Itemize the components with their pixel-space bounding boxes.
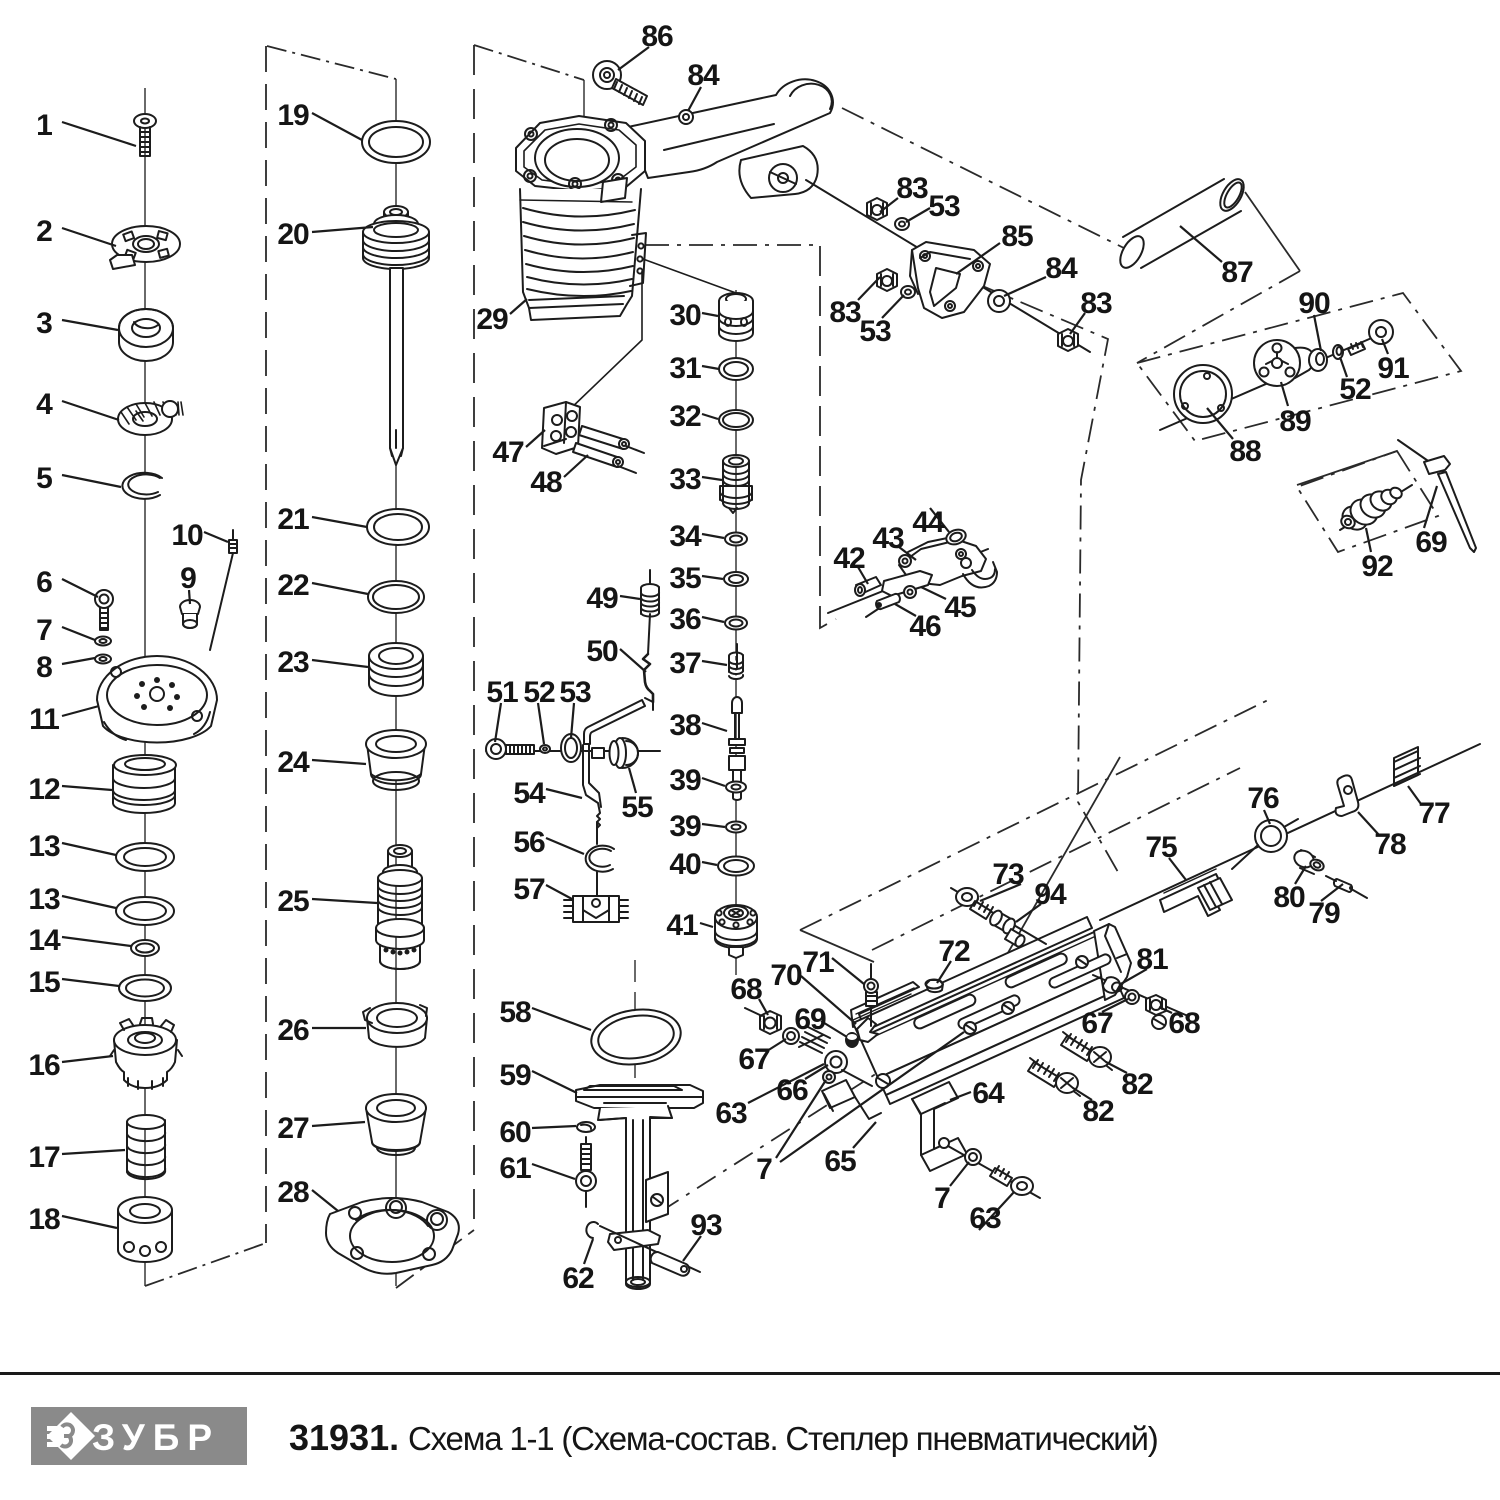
svg-text:47: 47 xyxy=(492,436,524,469)
svg-text:19: 19 xyxy=(277,99,309,132)
svg-text:78: 78 xyxy=(1374,828,1406,861)
svg-text:44: 44 xyxy=(912,506,945,539)
svg-text:90: 90 xyxy=(1298,287,1330,320)
svg-text:88: 88 xyxy=(1229,435,1261,468)
svg-text:21: 21 xyxy=(277,503,309,536)
svg-text:55: 55 xyxy=(621,791,653,824)
svg-text:53: 53 xyxy=(559,676,591,709)
svg-text:35: 35 xyxy=(669,562,701,595)
svg-text:ЗУБР: ЗУБР xyxy=(92,1417,220,1458)
svg-text:20: 20 xyxy=(277,218,309,251)
svg-text:73: 73 xyxy=(992,858,1024,891)
svg-text:82: 82 xyxy=(1121,1068,1153,1101)
svg-text:72: 72 xyxy=(938,935,970,968)
svg-text:92: 92 xyxy=(1361,550,1393,583)
svg-text:58: 58 xyxy=(499,996,531,1029)
svg-text:89: 89 xyxy=(1279,405,1311,438)
svg-text:53: 53 xyxy=(928,190,960,223)
svg-text:57: 57 xyxy=(513,873,545,906)
svg-text:5: 5 xyxy=(36,462,52,495)
svg-text:70: 70 xyxy=(770,959,802,992)
svg-text:36: 36 xyxy=(669,603,701,636)
svg-text:69: 69 xyxy=(794,1003,826,1036)
svg-text:40: 40 xyxy=(669,848,701,881)
svg-text:26: 26 xyxy=(277,1014,309,1047)
svg-text:52: 52 xyxy=(1339,373,1371,406)
svg-text:9: 9 xyxy=(180,562,196,595)
svg-text:8: 8 xyxy=(36,651,52,684)
svg-text:33: 33 xyxy=(669,463,701,496)
svg-text:7: 7 xyxy=(934,1182,950,1215)
svg-text:46: 46 xyxy=(909,610,941,643)
svg-text:84: 84 xyxy=(687,59,720,92)
svg-text:63: 63 xyxy=(969,1202,1001,1235)
svg-text:68: 68 xyxy=(730,973,762,1006)
svg-text:48: 48 xyxy=(530,466,562,499)
svg-text:45: 45 xyxy=(944,591,976,624)
svg-text:85: 85 xyxy=(1001,220,1033,253)
svg-text:54: 54 xyxy=(513,777,546,810)
svg-text:14: 14 xyxy=(28,924,61,957)
svg-text:10: 10 xyxy=(171,519,203,552)
svg-text:17: 17 xyxy=(28,1141,60,1174)
svg-text:28: 28 xyxy=(277,1176,309,1209)
svg-text:56: 56 xyxy=(513,826,545,859)
svg-text:49: 49 xyxy=(586,582,618,615)
svg-text:83: 83 xyxy=(1080,287,1112,320)
svg-text:61: 61 xyxy=(499,1152,531,1185)
svg-text:87: 87 xyxy=(1221,256,1253,289)
svg-text:76: 76 xyxy=(1247,782,1279,815)
svg-text:11: 11 xyxy=(29,703,59,736)
svg-text:38: 38 xyxy=(669,709,701,742)
svg-text:31931.: 31931. xyxy=(289,1417,399,1458)
svg-text:13: 13 xyxy=(28,830,60,863)
svg-text:34: 34 xyxy=(669,520,702,553)
svg-text:63: 63 xyxy=(715,1097,747,1130)
svg-text:30: 30 xyxy=(669,299,701,332)
svg-text:64: 64 xyxy=(972,1077,1005,1110)
svg-text:39: 39 xyxy=(669,764,701,797)
svg-text:16: 16 xyxy=(28,1049,60,1082)
svg-text:31: 31 xyxy=(669,352,701,385)
svg-text:3: 3 xyxy=(36,307,52,340)
svg-text:52: 52 xyxy=(523,676,555,709)
svg-text:23: 23 xyxy=(277,646,309,679)
svg-text:69: 69 xyxy=(1415,526,1447,559)
svg-text:Схема 1-1 (Схема-состав. Степл: Схема 1-1 (Схема-состав. Степлер пневмат… xyxy=(408,1420,1158,1457)
svg-text:12: 12 xyxy=(28,773,60,806)
svg-text:41: 41 xyxy=(666,909,698,942)
svg-text:43: 43 xyxy=(872,522,904,555)
svg-text:6: 6 xyxy=(36,566,52,599)
svg-text:68: 68 xyxy=(1168,1007,1200,1040)
svg-text:65: 65 xyxy=(824,1145,856,1178)
svg-text:22: 22 xyxy=(277,569,309,602)
svg-text:15: 15 xyxy=(28,966,60,999)
svg-text:29: 29 xyxy=(476,303,508,336)
svg-text:59: 59 xyxy=(499,1059,531,1092)
svg-text:83: 83 xyxy=(896,172,928,205)
svg-text:24: 24 xyxy=(277,746,310,779)
svg-text:81: 81 xyxy=(1136,943,1168,976)
svg-text:27: 27 xyxy=(277,1112,309,1145)
svg-text:79: 79 xyxy=(1308,897,1340,930)
svg-text:82: 82 xyxy=(1082,1095,1114,1128)
svg-text:50: 50 xyxy=(586,635,618,668)
svg-text:37: 37 xyxy=(669,647,701,680)
svg-text:25: 25 xyxy=(277,885,309,918)
svg-text:84: 84 xyxy=(1045,252,1078,285)
svg-text:67: 67 xyxy=(1081,1007,1113,1040)
svg-text:67: 67 xyxy=(738,1043,770,1076)
svg-text:32: 32 xyxy=(669,400,701,433)
svg-text:93: 93 xyxy=(690,1209,722,1242)
svg-text:7: 7 xyxy=(36,614,52,647)
svg-text:62: 62 xyxy=(562,1262,594,1295)
svg-text:75: 75 xyxy=(1145,831,1177,864)
svg-text:60: 60 xyxy=(499,1116,531,1149)
svg-text:2: 2 xyxy=(36,215,52,248)
svg-text:51: 51 xyxy=(486,676,518,709)
svg-text:80: 80 xyxy=(1273,881,1305,914)
svg-text:86: 86 xyxy=(641,20,673,53)
svg-text:91: 91 xyxy=(1377,352,1409,385)
svg-text:7: 7 xyxy=(756,1153,772,1186)
svg-text:66: 66 xyxy=(776,1074,808,1107)
svg-text:71: 71 xyxy=(802,946,834,979)
svg-text:39: 39 xyxy=(669,810,701,843)
svg-text:1: 1 xyxy=(36,109,52,142)
svg-text:4: 4 xyxy=(36,388,53,421)
svg-text:83: 83 xyxy=(829,296,861,329)
svg-text:77: 77 xyxy=(1418,797,1450,830)
svg-text:18: 18 xyxy=(28,1203,60,1236)
svg-text:53: 53 xyxy=(859,315,891,348)
svg-text:13: 13 xyxy=(28,883,60,916)
svg-text:94: 94 xyxy=(1034,878,1067,911)
svg-text:42: 42 xyxy=(833,542,865,575)
